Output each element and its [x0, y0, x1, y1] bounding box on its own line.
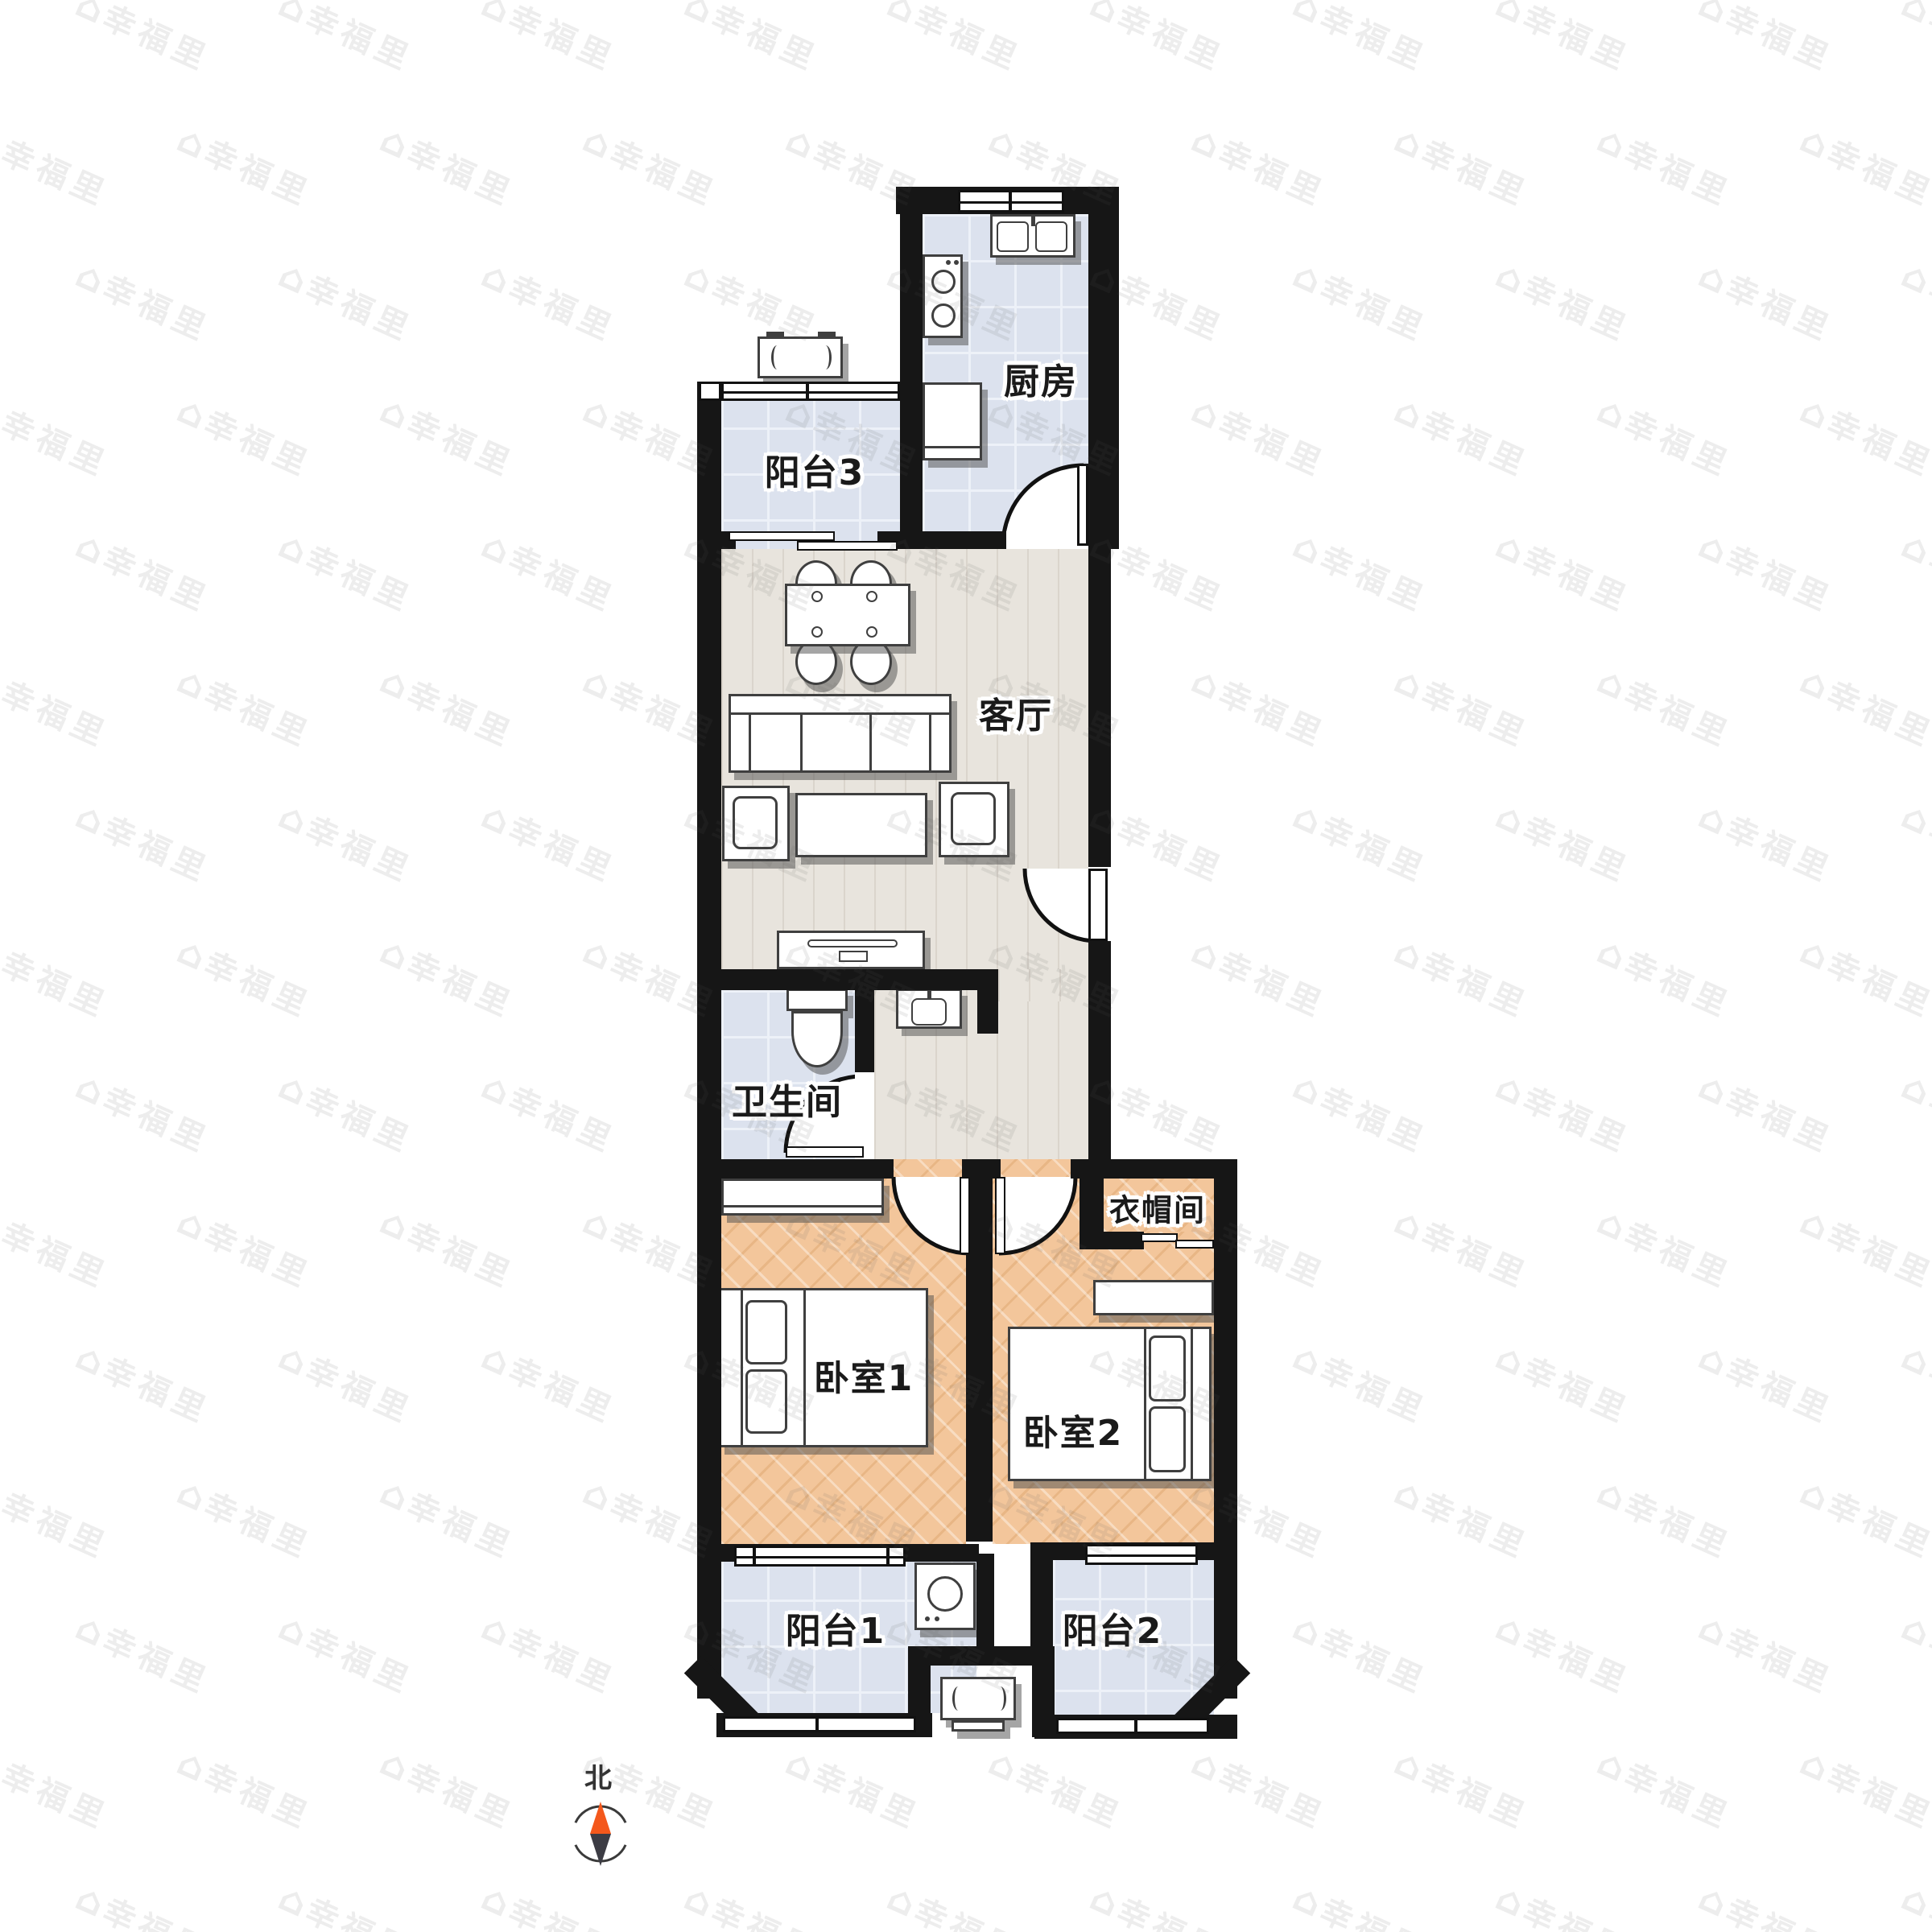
wall	[697, 1159, 894, 1179]
pillow	[745, 1300, 787, 1364]
wall	[1071, 1159, 1237, 1179]
room-label-balcony2: 阳台2	[1063, 1602, 1163, 1653]
coffee-table	[795, 793, 927, 857]
knob-icon	[935, 1616, 939, 1621]
room-label-balcony1: 阳台1	[786, 1602, 886, 1653]
wall	[1088, 940, 1111, 1159]
wardrobe	[721, 1179, 884, 1216]
washing-machine	[914, 1563, 976, 1630]
knob-icon	[946, 260, 951, 265]
bracket	[766, 332, 784, 337]
room-label-kitchen: 厨房	[1004, 353, 1078, 404]
pillow	[1149, 1335, 1186, 1402]
wall	[977, 969, 998, 1034]
washer-drum	[927, 1576, 963, 1612]
armchair-cushion	[733, 796, 778, 849]
window	[1056, 1718, 1209, 1734]
bracket	[818, 332, 836, 337]
tv	[807, 939, 898, 947]
blanket-line	[803, 1290, 806, 1445]
faucet-icon	[1031, 215, 1035, 226]
window	[721, 382, 900, 401]
sink-basin	[997, 221, 1029, 252]
room-label-balcony3: 阳台3	[765, 444, 865, 495]
door-opening	[855, 1072, 874, 1153]
window	[734, 1546, 906, 1567]
wall	[855, 990, 874, 1072]
wall	[900, 386, 923, 549]
sofa-armrest	[749, 712, 751, 770]
chair-mark	[866, 626, 877, 638]
north-label: 北	[584, 1757, 613, 1796]
room-label-cloakroom: 衣帽间	[1109, 1186, 1206, 1230]
pillow	[745, 1369, 787, 1434]
wall	[1214, 1159, 1237, 1699]
wall	[1088, 549, 1111, 867]
wall	[900, 187, 923, 388]
window	[958, 190, 1064, 213]
room-label-bathroom: 卫生间	[732, 1073, 843, 1125]
tv-stand	[777, 931, 925, 969]
sofa-divider	[800, 712, 803, 770]
chair-mark	[866, 591, 877, 602]
sofa-armrest	[929, 712, 931, 770]
window	[723, 1716, 916, 1732]
kitchen-sink	[990, 214, 1075, 258]
wall	[976, 1554, 994, 1648]
faucet-icon	[927, 989, 931, 999]
wall	[697, 969, 998, 990]
burner-icon	[931, 303, 956, 328]
door-leaf	[995, 1177, 1005, 1254]
dresser	[1093, 1280, 1214, 1315]
door-leaf	[1077, 464, 1088, 546]
cased-opening	[1175, 1240, 1214, 1249]
chair-mark	[811, 591, 823, 602]
chair-mark	[811, 626, 823, 638]
ac-bracket	[952, 1720, 1005, 1732]
door-opening	[1006, 531, 1088, 549]
room-label-bedroom1: 卧室1	[814, 1349, 914, 1401]
cased-opening	[1141, 1233, 1178, 1242]
sliding-door	[729, 531, 835, 541]
floor-plan: 厨房 阳台3 客厅 卫生间 衣帽间 卧室1 卧室2 阳台1 阳台2 北 ⌂幸福里…	[0, 0, 1932, 1932]
sink-basin	[1035, 221, 1067, 252]
headboard	[1191, 1329, 1193, 1479]
entry-door-leaf	[1088, 869, 1108, 941]
washbasin	[896, 989, 962, 1029]
wardrobe-line	[724, 1205, 881, 1207]
window	[1085, 1544, 1198, 1565]
door-leaf	[960, 1177, 970, 1254]
basin	[911, 998, 947, 1026]
burner-icon	[931, 270, 956, 294]
wall	[1088, 187, 1119, 549]
door-swings	[0, 0, 1932, 1932]
knob-icon	[925, 1616, 930, 1621]
armchair	[939, 782, 1009, 857]
armchair-cushion	[951, 792, 996, 845]
toilet-tank	[786, 989, 848, 1011]
room-label-bedroom2: 卧室2	[1023, 1404, 1124, 1455]
sofa	[729, 694, 952, 773]
dining-table	[785, 584, 910, 646]
wall	[1030, 1552, 1053, 1648]
tv-base	[839, 951, 868, 962]
sliding-door	[797, 541, 898, 551]
ac-unit	[940, 1677, 1016, 1720]
wall	[918, 531, 1006, 549]
kitchen-cabinet	[923, 382, 982, 460]
room-label-living: 客厅	[979, 687, 1053, 738]
cabinet-line	[925, 446, 980, 448]
blanket-line	[1144, 1329, 1146, 1479]
armchair	[722, 786, 790, 861]
stove	[923, 254, 963, 338]
headboard	[741, 1290, 743, 1445]
compass-icon	[536, 1795, 665, 1876]
door-leaf	[786, 1146, 864, 1158]
ac-outdoor-unit	[758, 336, 843, 378]
wall	[697, 382, 721, 1699]
sofa-divider	[869, 712, 872, 770]
pillow	[1149, 1406, 1186, 1472]
wall	[1080, 1232, 1144, 1249]
knob-icon	[954, 260, 959, 265]
sofa-back-line	[731, 712, 949, 715]
window-cap	[699, 382, 721, 401]
